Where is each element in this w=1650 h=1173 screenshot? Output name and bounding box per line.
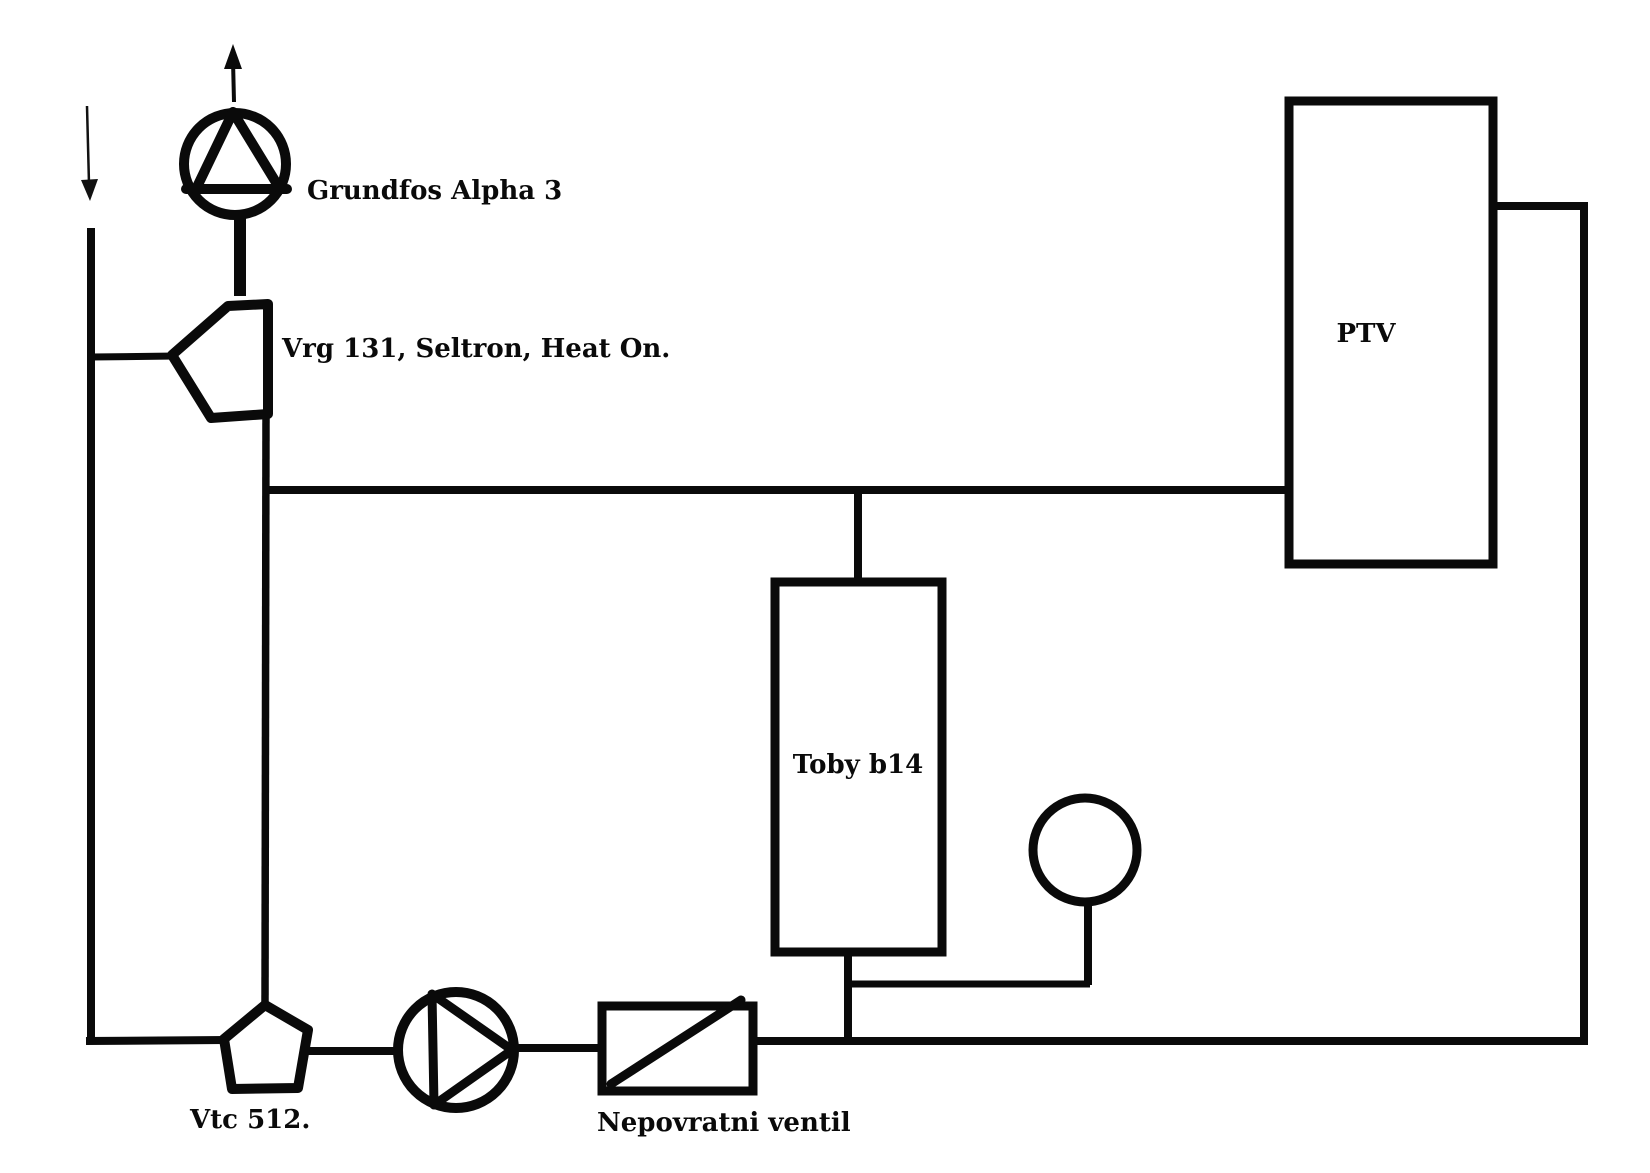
arrow-down-head [81, 179, 98, 201]
ptv-tank-label: PTV [1336, 319, 1396, 349]
thermic-valve-pentagon-icon [224, 1005, 308, 1089]
supply-pump-label: Grundfos Alpha 3 [307, 176, 562, 206]
pipe-valve-drop [265, 414, 266, 1007]
heating-schematic-diagram: Grundfos Alpha 3 Vrg 131, Seltron, Heat … [0, 0, 1650, 1173]
pump-icon [184, 112, 287, 215]
check-valve-label: Nepovratni ventil [597, 1108, 851, 1138]
arrow-down-shaft [87, 106, 89, 184]
pressure-gauge [1033, 798, 1137, 902]
pipe-valve-feed [91, 356, 176, 357]
ptv-tank: PTV [1289, 101, 1493, 564]
vtc-valve: Vtc 512. [189, 1005, 310, 1135]
circulation-pump [398, 992, 514, 1108]
diagram-page: Grundfos Alpha 3 Vrg 131, Seltron, Heat … [0, 0, 1650, 1173]
check-valve: Nepovratni ventil [597, 1000, 851, 1138]
toby-boiler-label: Toby b14 [793, 750, 923, 780]
gauge-icon [1033, 798, 1137, 902]
arrow-up-icon [224, 44, 242, 102]
pump-body [184, 113, 286, 215]
vtc-valve-label: Vtc 512. [189, 1105, 310, 1135]
arrow-up-head [224, 44, 242, 69]
mixing-valve-label: Vrg 131, Seltron, Heat On. [281, 334, 670, 364]
pipe-bottom-left [86, 1040, 226, 1041]
mixing-valve: Vrg 131, Seltron, Heat On. [172, 304, 670, 418]
arrow-down-icon [81, 106, 98, 201]
three-way-mixing-valve-icon [172, 304, 268, 418]
toby-boiler: Toby b14 [775, 582, 942, 952]
supply-pump: Grundfos Alpha 3 [184, 44, 562, 296]
